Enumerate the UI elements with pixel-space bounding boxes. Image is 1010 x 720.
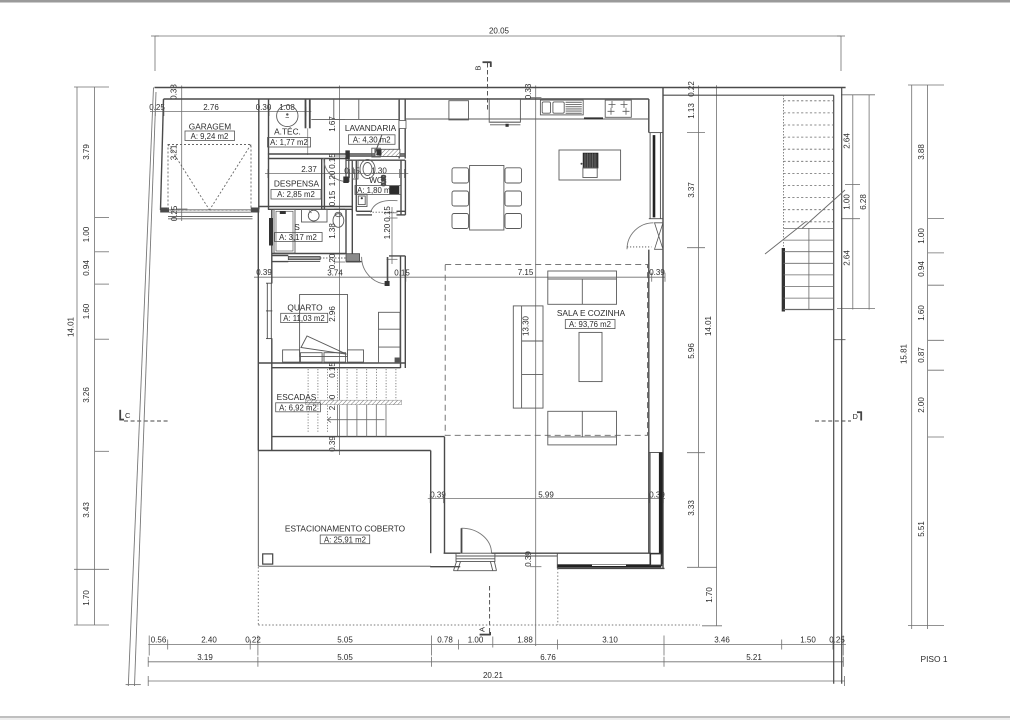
svg-text:A: 11,03 m2: A: 11,03 m2: [283, 314, 324, 323]
svg-text:2.64: 2.64: [842, 133, 851, 149]
svg-text:1.00: 1.00: [842, 194, 851, 210]
svg-text:A: 4,30 m2: A: 4,30 m2: [353, 135, 391, 144]
svg-text:3.88: 3.88: [917, 144, 926, 160]
svg-text:ESTACIONAMENTO COBERTO: ESTACIONAMENTO COBERTO: [285, 524, 406, 534]
svg-text:20.21: 20.21: [483, 671, 504, 680]
svg-text:A: A: [478, 627, 487, 632]
svg-text:3.46: 3.46: [714, 636, 730, 645]
svg-text:1.70: 1.70: [705, 587, 714, 603]
svg-text:3.26: 3.26: [82, 387, 91, 403]
svg-text:S: S: [294, 222, 300, 232]
svg-text:QUARTO: QUARTO: [287, 303, 323, 313]
svg-text:2.37: 2.37: [301, 165, 317, 174]
svg-text:1.20: 1.20: [383, 223, 392, 239]
svg-text:2.00: 2.00: [917, 397, 926, 413]
svg-text:LAVANDARIA: LAVANDARIA: [345, 123, 397, 133]
svg-text:3.21: 3.21: [170, 144, 179, 160]
svg-text:D: D: [853, 412, 859, 421]
svg-text:A: 25,91 m2: A: 25,91 m2: [324, 535, 366, 544]
svg-text:A: 93,76 m2: A: 93,76 m2: [569, 320, 611, 329]
svg-text:PISO 1: PISO 1: [921, 654, 948, 664]
svg-text:6.76: 6.76: [540, 653, 556, 662]
svg-text:0.15: 0.15: [394, 269, 410, 278]
svg-text:0.33: 0.33: [524, 83, 533, 99]
svg-text:0.22: 0.22: [245, 636, 261, 645]
svg-text:DESPENSA: DESPENSA: [274, 179, 320, 189]
svg-text:6.28: 6.28: [859, 194, 868, 210]
svg-text:5.51: 5.51: [917, 521, 926, 537]
svg-text:5.05: 5.05: [337, 636, 353, 645]
svg-text:WC: WC: [369, 175, 383, 185]
svg-text:1.00: 1.00: [82, 226, 91, 242]
svg-text:A.TÉC.: A.TÉC.: [274, 127, 301, 137]
svg-text:A: 2,85 m2: A: 2,85 m2: [277, 190, 315, 199]
svg-text:0.33: 0.33: [170, 84, 179, 100]
svg-text:0.87: 0.87: [917, 347, 926, 363]
svg-text:1.38: 1.38: [328, 223, 337, 239]
svg-text:5.99: 5.99: [538, 491, 554, 500]
svg-text:14.01: 14.01: [704, 315, 713, 336]
svg-text:ESCADAS: ESCADAS: [277, 392, 317, 402]
svg-text:3.19: 3.19: [197, 653, 213, 662]
svg-text:3.10: 3.10: [602, 636, 618, 645]
svg-text:GARAGEM: GARAGEM: [189, 122, 232, 132]
svg-text:0.94: 0.94: [917, 261, 926, 277]
svg-text:A: 3,17 m2: A: 3,17 m2: [279, 233, 317, 242]
svg-text:5.21: 5.21: [746, 653, 762, 662]
svg-text:0.78: 0.78: [437, 636, 453, 645]
svg-text:A: 6,92 m2: A: 6,92 m2: [279, 403, 317, 412]
svg-text:3.79: 3.79: [82, 144, 91, 160]
svg-text:7.15: 7.15: [518, 268, 534, 277]
svg-text:1.13: 1.13: [687, 103, 696, 119]
svg-text:1.60: 1.60: [82, 303, 91, 319]
svg-text:1.70: 1.70: [82, 590, 91, 606]
svg-text:2.76: 2.76: [203, 103, 219, 112]
svg-text:0.94: 0.94: [82, 260, 91, 276]
svg-text:3.37: 3.37: [687, 182, 696, 198]
svg-text:A: 1,77 m2: A: 1,77 m2: [270, 138, 308, 147]
svg-text:0.22: 0.22: [687, 81, 696, 97]
svg-text:1.60: 1.60: [917, 305, 926, 321]
svg-text:1.88: 1.88: [517, 636, 533, 645]
svg-text:A: 1,80 m2: A: 1,80 m2: [357, 186, 395, 195]
svg-text:0.15: 0.15: [383, 206, 392, 222]
svg-text:0.25: 0.25: [829, 636, 845, 645]
svg-text:2.96: 2.96: [328, 306, 337, 322]
svg-text:SALA E COZINHA: SALA E COZINHA: [557, 308, 626, 318]
svg-text:0.56: 0.56: [151, 636, 167, 645]
svg-text:0.20: 0.20: [328, 253, 337, 269]
svg-text:15.81: 15.81: [900, 343, 909, 364]
svg-text:0.15: 0.15: [328, 362, 337, 378]
svg-text:1.00: 1.00: [917, 228, 926, 244]
svg-text:3.33: 3.33: [687, 500, 696, 516]
svg-text:0.15: 0.15: [328, 153, 337, 169]
svg-text:0.15: 0.15: [328, 190, 337, 206]
svg-text:C: C: [125, 411, 131, 420]
svg-text:3.43: 3.43: [82, 502, 91, 518]
svg-text:20.05: 20.05: [489, 27, 510, 36]
svg-text:1.00: 1.00: [468, 636, 484, 645]
svg-text:13.30: 13.30: [522, 315, 531, 336]
svg-text:14.01: 14.01: [67, 316, 76, 337]
svg-text:B: B: [474, 65, 483, 70]
svg-text:0.39: 0.39: [328, 436, 337, 452]
svg-text:1.08: 1.08: [279, 103, 295, 112]
svg-text:5.96: 5.96: [687, 343, 696, 359]
svg-text:5.05: 5.05: [337, 653, 353, 662]
svg-text:2.64: 2.64: [842, 250, 851, 266]
svg-text:1.50: 1.50: [800, 636, 816, 645]
svg-text:A: 9,24 m2: A: 9,24 m2: [191, 132, 229, 141]
svg-text:2.40: 2.40: [201, 636, 217, 645]
svg-text:1.67: 1.67: [328, 116, 337, 132]
